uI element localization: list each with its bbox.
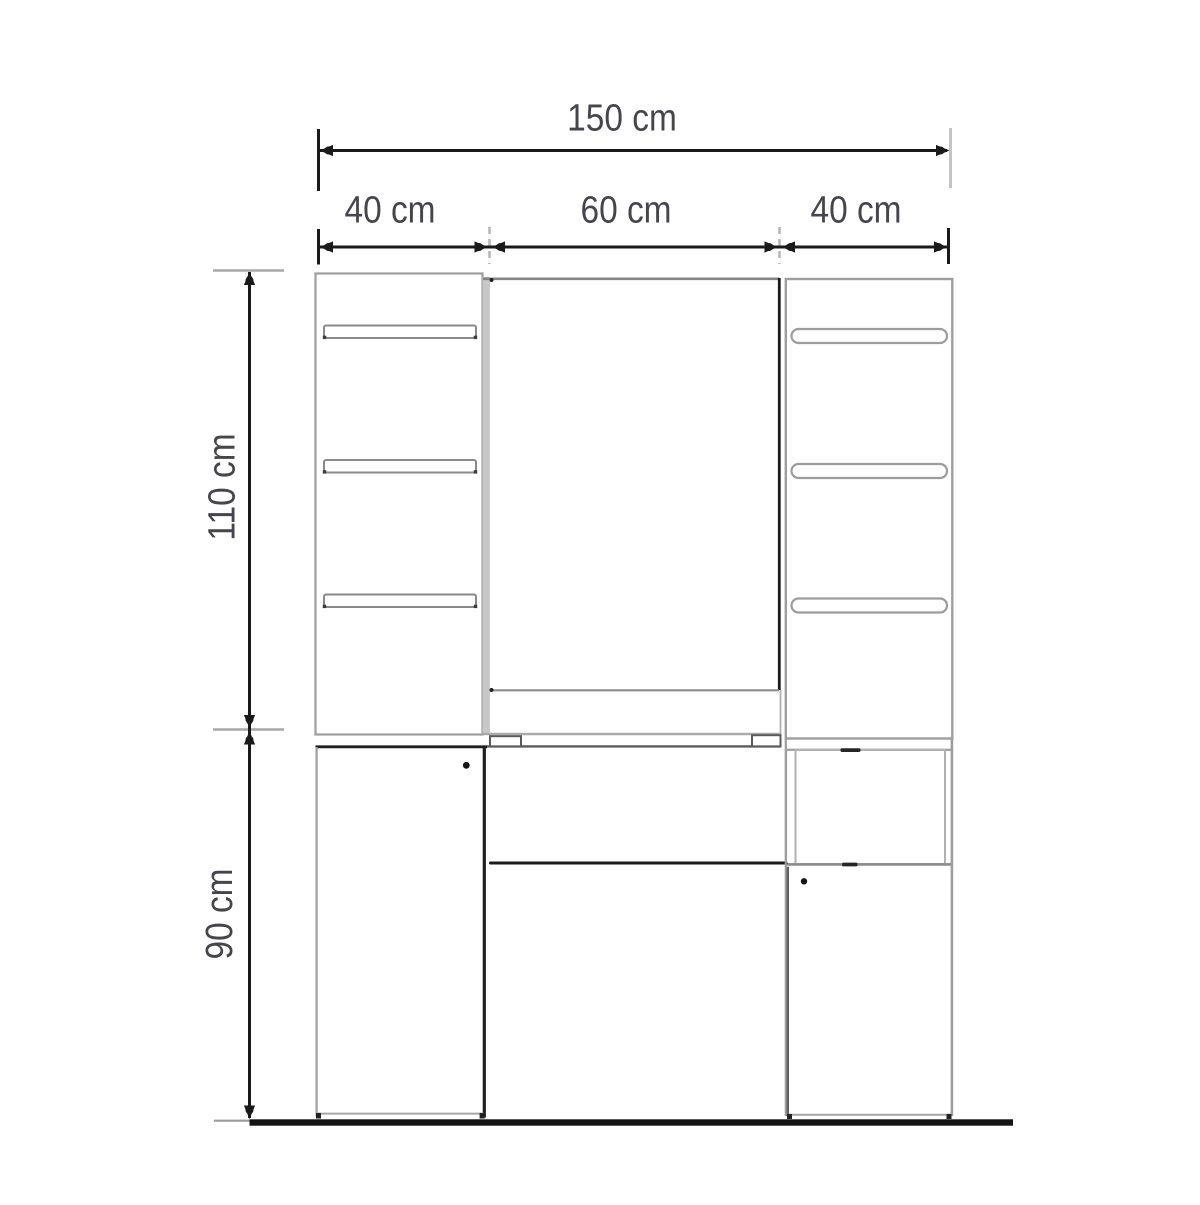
- svg-text:40 cm: 40 cm: [344, 189, 435, 231]
- svg-text:90 cm: 90 cm: [198, 868, 240, 959]
- svg-text:150 cm: 150 cm: [567, 97, 677, 139]
- svg-text:60 cm: 60 cm: [580, 189, 671, 231]
- svg-text:40 cm: 40 cm: [810, 189, 901, 231]
- svg-text:110 cm: 110 cm: [201, 433, 243, 540]
